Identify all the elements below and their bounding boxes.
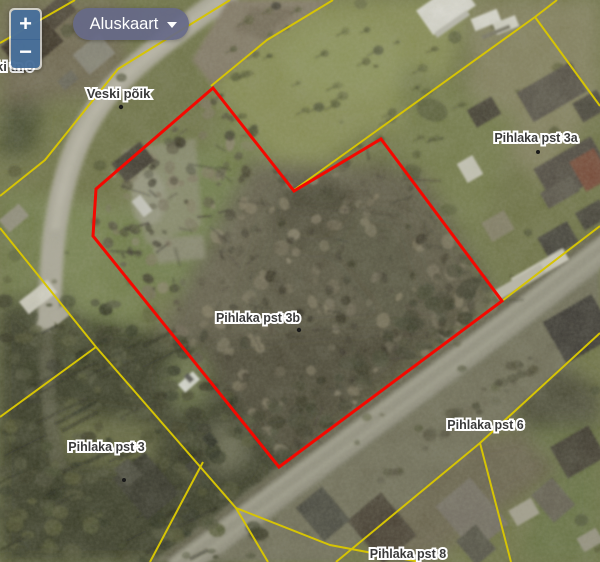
svg-text:Pihlaka pst 3b: Pihlaka pst 3b — [216, 311, 300, 325]
svg-text:Veski põik: Veski põik — [87, 86, 151, 101]
svg-text:Pihlaka pst 3: Pihlaka pst 3 — [68, 440, 144, 454]
svg-text:Pihlaka pst 6: Pihlaka pst 6 — [447, 418, 523, 432]
svg-text:Pihlaka pst 8: Pihlaka pst 8 — [370, 547, 446, 561]
svg-text:Pihlaka pst 3a: Pihlaka pst 3a — [494, 131, 578, 145]
